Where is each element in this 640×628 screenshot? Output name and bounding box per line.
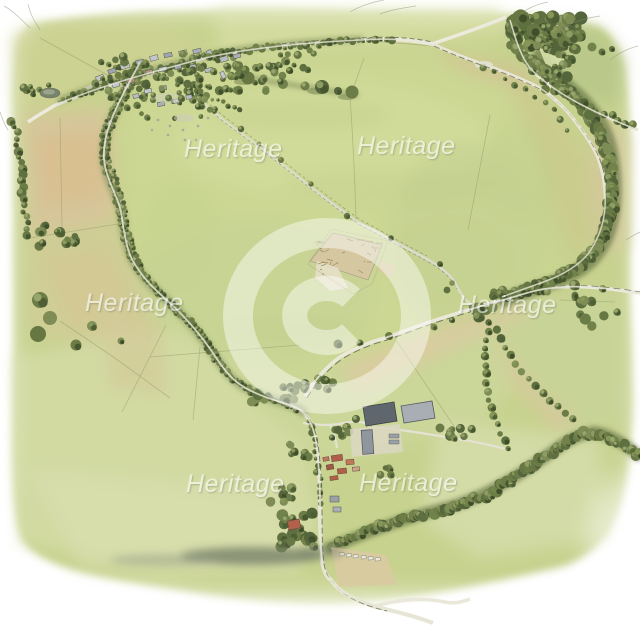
- svg-text:Heritage: Heritage: [184, 135, 283, 163]
- svg-text:Heritage: Heritage: [458, 291, 557, 319]
- svg-text:Heritage: Heritage: [85, 289, 184, 317]
- svg-text:Heritage: Heritage: [359, 469, 458, 497]
- svg-text:Heritage: Heritage: [357, 132, 456, 160]
- svg-text:Heritage: Heritage: [186, 470, 285, 498]
